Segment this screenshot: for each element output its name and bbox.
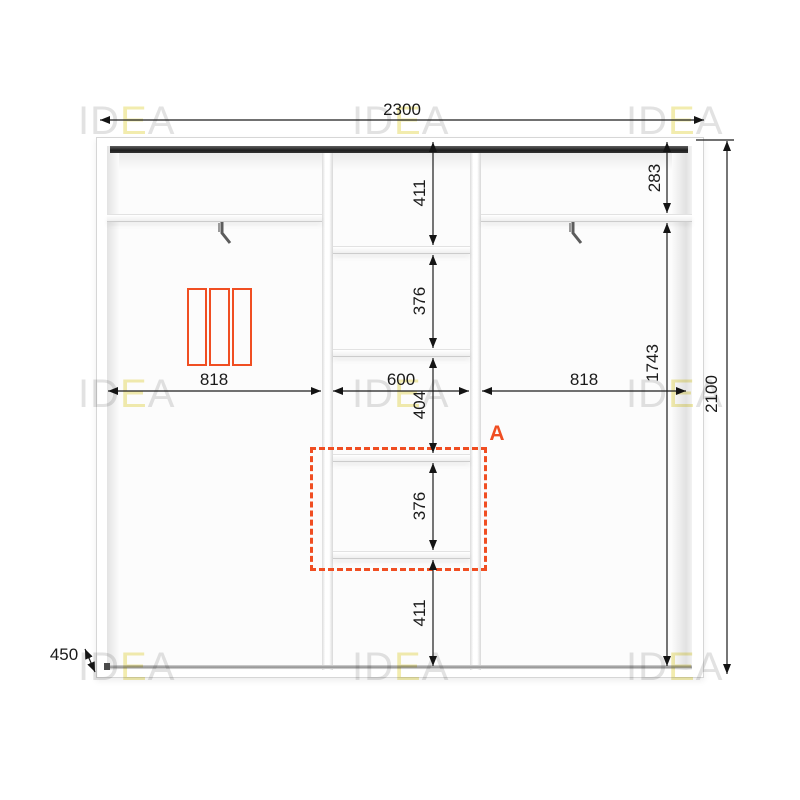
dim-right-section-width: 818 xyxy=(570,370,598,390)
dim-left-section-width: 818 xyxy=(200,370,228,390)
dim-total-width: 2300 xyxy=(383,100,421,120)
section-a-label: A xyxy=(489,422,504,446)
dim-total-height: 2100 xyxy=(702,375,722,413)
dimension-overlay xyxy=(0,0,800,800)
dim-middle-height-2: 376 xyxy=(410,287,430,315)
rail-bracket-icon xyxy=(222,222,230,243)
hanging-rail-brackets xyxy=(219,222,581,243)
dim-middle-height-4: 376 xyxy=(410,492,430,520)
dim-right-main-height: 1743 xyxy=(643,344,663,382)
wardrobe-dimension-drawing: IDEA IDEA IDEA IDEA IDEA IDEA IDEA IDEA … xyxy=(0,0,800,800)
dim-middle-height-3: 404 xyxy=(410,391,430,419)
dim-right-top-height: 283 xyxy=(645,164,665,192)
dim-depth: 450 xyxy=(50,645,78,665)
dim-middle-section-width: 600 xyxy=(387,370,415,390)
dim-middle-height-5: 411 xyxy=(410,599,430,626)
rail-bracket-icon xyxy=(573,222,581,243)
dim-middle-height-1: 411 xyxy=(410,179,430,206)
